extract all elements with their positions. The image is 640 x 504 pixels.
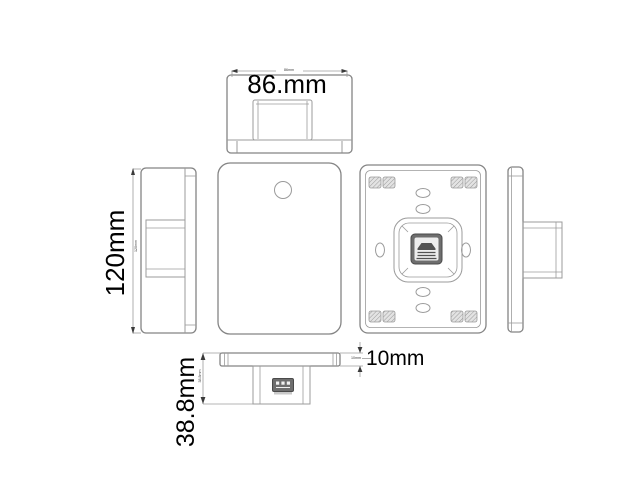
terminal-block-icon <box>273 379 294 395</box>
arrowhead-up <box>358 366 363 372</box>
right-side-view <box>508 167 562 332</box>
screw-terminal-bottom-left <box>369 311 395 322</box>
back-view <box>360 165 486 333</box>
width-dimension-small-label: 86mm <box>283 68 295 72</box>
depth-dimension-line <box>201 353 254 404</box>
mounting-slot <box>416 205 430 214</box>
height-dimension-small-label: 120mm <box>134 237 138 255</box>
screw-terminal-bottom-right <box>451 311 477 322</box>
thickness-dimension-small-label: 10mm <box>349 356 363 360</box>
arrowhead-down <box>358 347 363 353</box>
arrowhead-top <box>201 353 206 360</box>
left-view-outline <box>141 168 196 333</box>
bottom-view-plate <box>220 353 340 366</box>
top-view-back-box <box>253 100 312 140</box>
left-side-view <box>141 168 196 333</box>
indicator-circle <box>275 182 292 199</box>
left-view-back-box <box>146 220 185 277</box>
depth-dimension-label: 38.8mm <box>173 347 199 457</box>
mounting-slot <box>416 189 430 198</box>
screw-terminal-top-right <box>451 177 477 188</box>
mounting-slot <box>376 243 385 257</box>
mounting-slot <box>462 243 471 257</box>
mounting-slot <box>416 288 430 297</box>
bottom-view <box>220 353 340 404</box>
depth-dimension-small-label: 38.8mm <box>198 367 202 385</box>
right-view-plate <box>508 167 523 332</box>
front-panel-outline <box>218 163 341 334</box>
thickness-dimension-label: 10mm <box>366 347 436 369</box>
dimension-drawing: 86.mm 120mm 10mm 38.8mm 86mm 120mm 10mm … <box>0 0 640 504</box>
front-view <box>218 163 341 334</box>
mounting-slot <box>416 304 430 313</box>
rj45-port-icon <box>411 234 442 264</box>
arrowhead-bottom <box>201 397 206 404</box>
screw-terminal-top-left <box>369 177 395 188</box>
width-dimension-label: 86.mm <box>237 70 337 98</box>
height-dimension-label: 120mm <box>101 198 129 308</box>
